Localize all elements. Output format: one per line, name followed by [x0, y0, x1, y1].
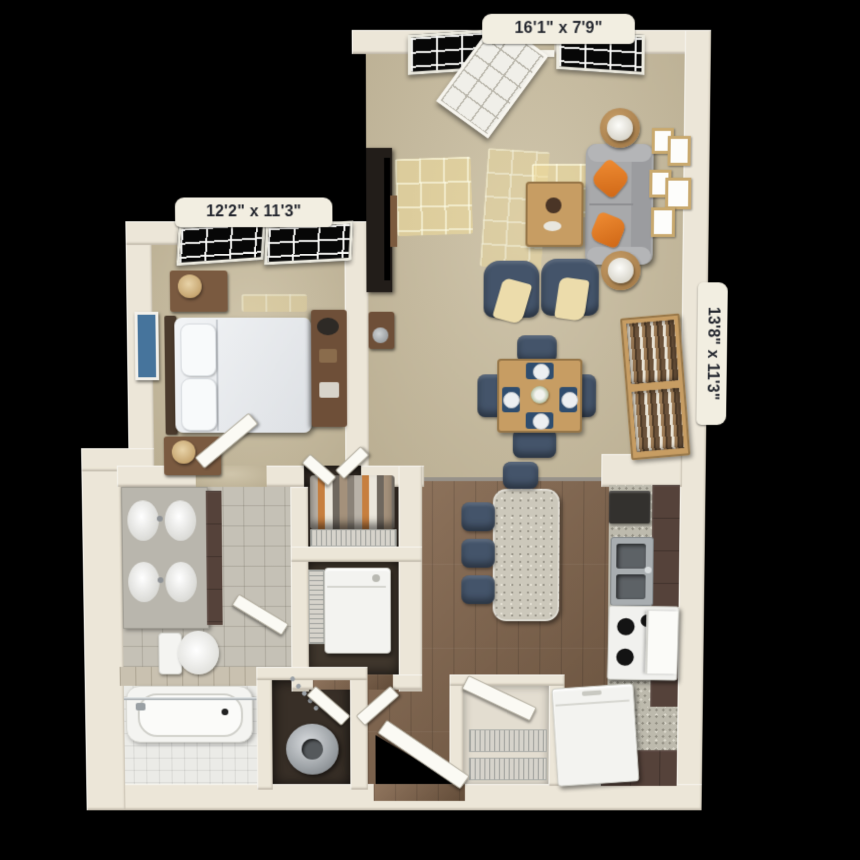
kitchen-dimension-label: 13'8" x 11'3": [696, 282, 727, 425]
tv-console-shelf: [390, 196, 397, 247]
floor-plan-screenshot: 12'2" x 11'3" 16'1" x 7'9" 13'8" x 11'3": [0, 0, 860, 860]
wall-closet-right: [398, 466, 422, 692]
dinner-plate: [533, 364, 550, 381]
living-dimension-text: 16'1" x 7'9": [515, 20, 603, 38]
stove: [607, 605, 679, 680]
living-dimension-label: 16'1" x 7'9": [482, 14, 635, 44]
table-lamp: [607, 115, 633, 141]
shower-rod: [124, 697, 257, 700]
coffee-table-decor: [546, 197, 562, 213]
vanity-faucet: [158, 577, 164, 583]
pantry-wire-shelf: [469, 729, 547, 752]
bar-stool: [461, 539, 494, 568]
sink-basin: [616, 574, 646, 599]
dresser-decor: [319, 382, 339, 398]
sink-faucet: [645, 567, 652, 574]
kitchen-island: [493, 489, 560, 621]
vanity-sink: [128, 562, 160, 602]
kitchen-sink: [610, 537, 654, 606]
dinner-plate: [561, 392, 578, 409]
sofa-back-cushions: [631, 148, 652, 261]
water-heater-flue: [302, 739, 324, 760]
bedroom-dimension-text: 12'2" x 11'3": [206, 203, 301, 221]
washer-seam: [327, 586, 386, 588]
table-lamp: [608, 258, 634, 284]
wall-bedroom-living-divider: [344, 221, 369, 487]
wall-utility-right: [350, 667, 368, 790]
stove-burner: [617, 618, 635, 635]
vanity-sink: [164, 500, 196, 540]
dinner-plate: [503, 392, 520, 409]
nightstand-lamp: [172, 440, 196, 463]
waste-bin: [373, 327, 389, 343]
vanity-sink: [165, 562, 197, 602]
entry-opening: [374, 784, 465, 801]
vanity-sink: [127, 500, 159, 540]
refrigerator-seam: [555, 700, 629, 707]
toilet-bowl: [178, 631, 219, 675]
bed-pillow: [181, 378, 217, 431]
vanity-faucet: [157, 516, 163, 522]
bathtub-drain: [222, 709, 229, 716]
stove-door-open: [645, 611, 678, 674]
sunlight-patch: [241, 294, 307, 312]
wall-art-frame: [668, 136, 691, 166]
hanging-clothes: [310, 475, 395, 529]
vanity-cabinet: [206, 491, 223, 625]
sunlight-patch: [395, 157, 473, 237]
dresser-decor: [319, 349, 337, 363]
nightstand-lamp: [178, 274, 202, 298]
bar-stool: [461, 502, 494, 531]
pantry-wire-shelf: [469, 758, 547, 781]
bookcase-shelf-books: [632, 388, 684, 452]
bed-pillow: [180, 324, 216, 377]
wall-bath-left: [81, 448, 125, 810]
laundry-wire-shelf: [308, 570, 324, 644]
bedroom-wall-art: [134, 312, 159, 380]
refrigerator: [551, 683, 639, 786]
bedroom-window: [264, 221, 353, 265]
wall-art-frame: [665, 178, 691, 210]
dresser-decor: [317, 318, 339, 336]
coffee-table-decor: [543, 221, 561, 231]
microwave: [609, 491, 651, 524]
wall-utility-left: [256, 667, 272, 790]
sink-basin: [616, 544, 646, 569]
dining-chair: [513, 429, 557, 458]
table-centerpiece: [531, 386, 549, 404]
bedroom-dimension-label: 12'2" x 11'3": [175, 197, 333, 227]
floor-plan: 12'2" x 11'3" 16'1" x 7'9" 13'8" x 11'3": [0, 0, 860, 835]
bar-stool: [461, 575, 494, 604]
bookcase-shelf-books: [626, 320, 678, 384]
stove-burner: [616, 648, 634, 665]
tub-faucet: [136, 703, 146, 711]
kitchen-dimension-text: 13'8" x 11'3": [703, 307, 722, 400]
sofa-seat-seam: [589, 203, 633, 205]
closet-wire-shelf: [310, 529, 396, 546]
wall-closet-divider: [291, 547, 423, 562]
bookcase: [620, 313, 690, 460]
refrigerator-handle: [582, 690, 602, 696]
washer-dryer: [324, 568, 391, 654]
wall-art-frame: [651, 207, 675, 237]
coffee-table: [525, 182, 583, 247]
dinner-plate: [533, 413, 550, 430]
washer-dial: [372, 574, 380, 582]
wall-utility-top: [256, 667, 367, 680]
wall-bath-closet: [290, 487, 309, 692]
bar-stool: [503, 462, 539, 489]
